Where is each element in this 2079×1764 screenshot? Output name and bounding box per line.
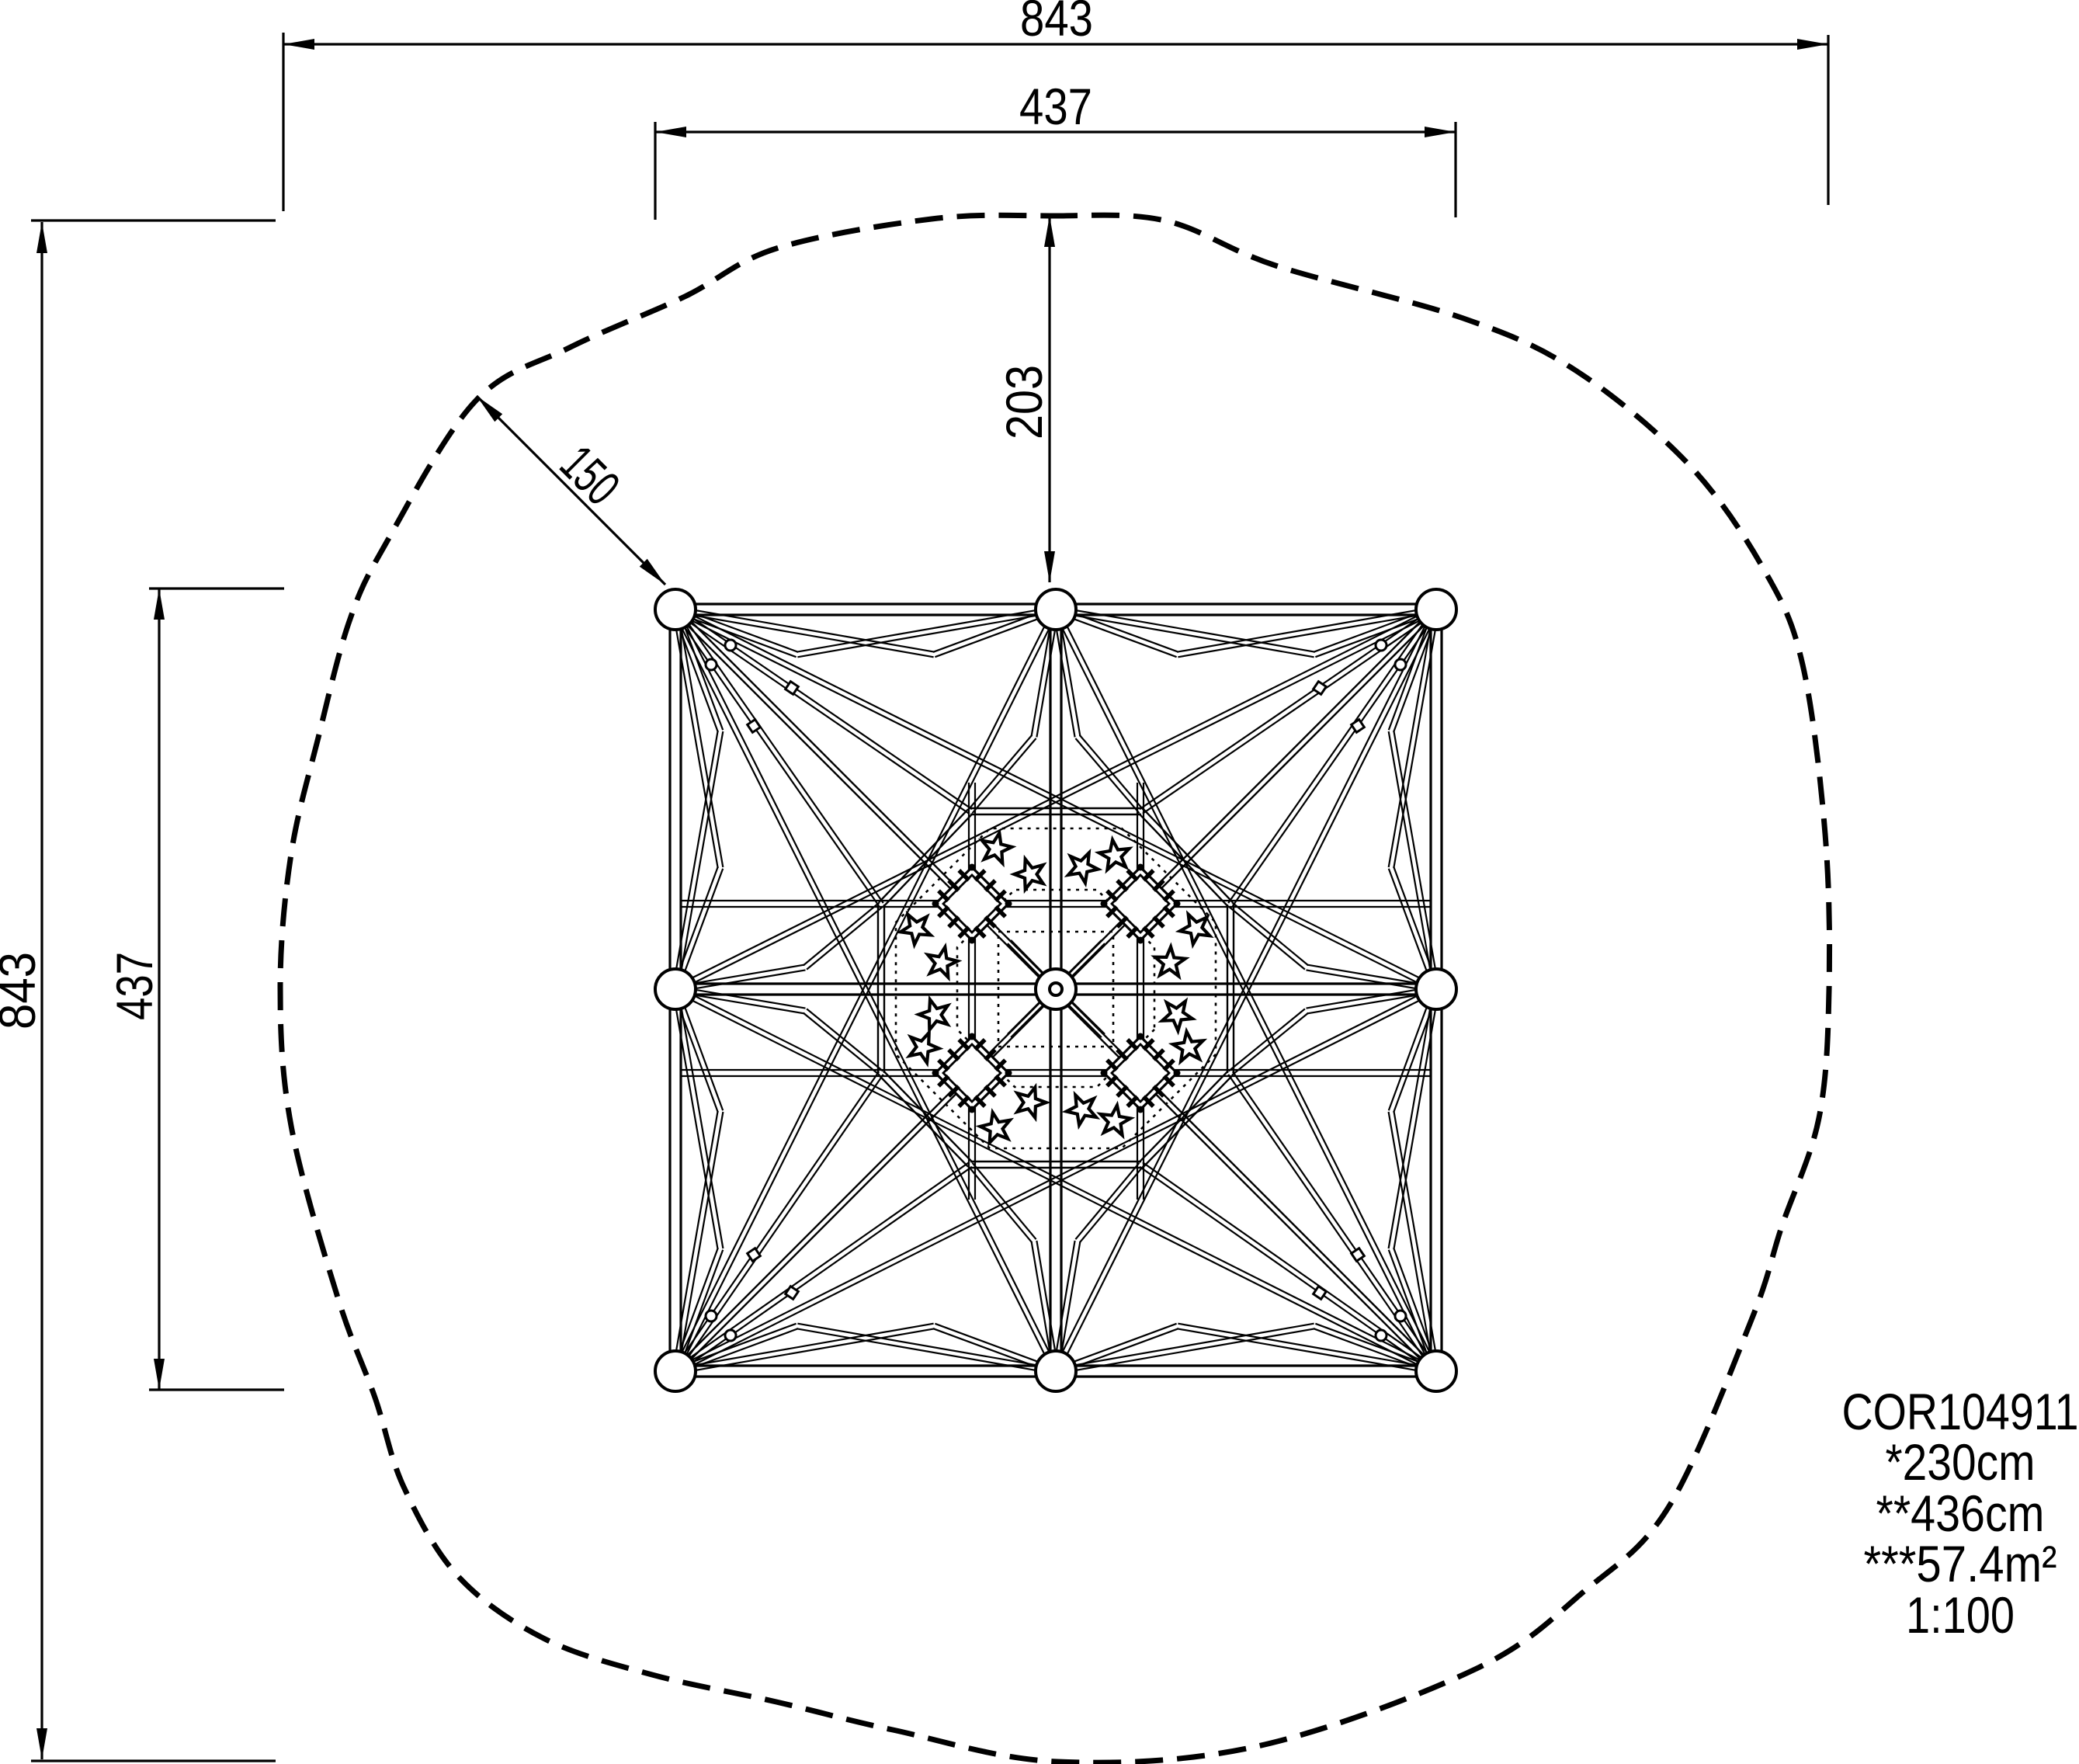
svg-text:843: 843 xyxy=(1020,0,1093,47)
svg-text:COR104911: COR104911 xyxy=(1842,1383,2079,1440)
svg-text:437: 437 xyxy=(106,952,163,1020)
svg-text:***57.4m²: ***57.4m² xyxy=(1864,1535,2057,1592)
svg-text:*230cm: *230cm xyxy=(1886,1433,2036,1491)
svg-text:**436cm: **436cm xyxy=(1876,1484,2045,1542)
svg-text:1:100: 1:100 xyxy=(1906,1586,2015,1644)
svg-text:437: 437 xyxy=(1019,78,1092,135)
svg-text:843: 843 xyxy=(0,952,46,1030)
svg-text:203: 203 xyxy=(995,365,1053,439)
